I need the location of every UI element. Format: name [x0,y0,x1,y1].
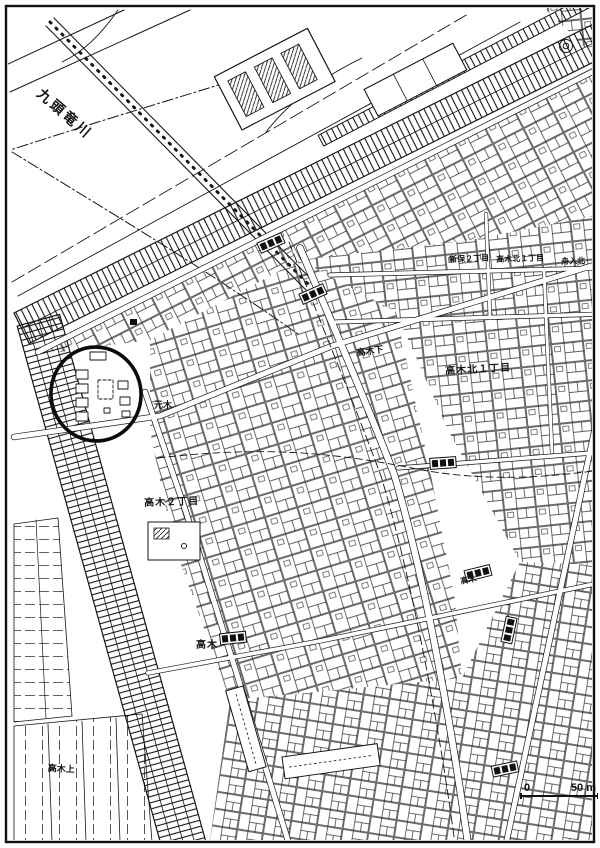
map-page: 0 50 m 九頭竜川新保２丁目高木北１丁目舟入北高木北１丁目高木２丁目高木元木… [0,0,600,848]
map-canvas [0,0,600,848]
factory-building [214,28,335,130]
strip-parcels-west [14,518,72,722]
landmark-block [130,319,137,325]
culvert-icon [430,457,457,470]
school-grounds [148,522,200,560]
culvert-icon [219,631,246,645]
culvert-icon [464,565,492,582]
